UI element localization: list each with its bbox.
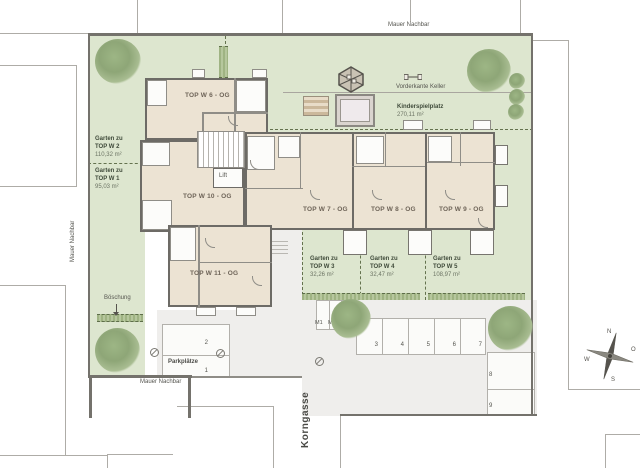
compass-north: N <box>607 329 611 335</box>
roof-vent <box>403 120 423 130</box>
compass-south: S <box>611 377 615 383</box>
unit-separation-wall <box>425 132 427 230</box>
neighbor-outline <box>107 454 108 468</box>
unit-label-w7: TOP W 7 - OG <box>303 206 348 213</box>
basement-edge-label: Vorderkante Keller <box>396 84 445 90</box>
room-divider <box>352 166 425 167</box>
balcony <box>495 185 508 207</box>
unit-label-w9: TOP W 9 - OG <box>439 206 484 213</box>
neighbor-outline <box>177 406 273 407</box>
garden-label-w5: Garten zu TOP W 5 108,97 m² <box>433 256 461 279</box>
garden-w5-unit: TOP W 5 <box>433 264 461 272</box>
neighbor-outline <box>568 40 569 389</box>
neighbor-outline <box>340 413 341 468</box>
utility-marker-icon <box>315 357 324 366</box>
wall-stub <box>188 375 191 418</box>
garden-w3-area: 32,26 m² <box>310 272 338 280</box>
stall-number: 3 <box>368 342 378 348</box>
staircase <box>197 131 245 168</box>
neighbor-building <box>0 65 77 187</box>
stall-number: 8 <box>489 372 499 378</box>
balcony <box>470 230 494 255</box>
moto-stall-label: M1 <box>315 320 323 326</box>
balcony <box>408 230 432 255</box>
boundary-line-south <box>192 376 302 378</box>
garden-w2-unit: TOP W 2 <box>95 144 123 152</box>
garden-w3-unit: TOP W 3 <box>310 264 338 272</box>
slope-label: Böschung <box>104 295 131 303</box>
stall-divider <box>487 389 535 390</box>
boundary-wall-south <box>88 375 192 378</box>
sandbox <box>335 94 375 127</box>
stall-divider <box>434 318 435 355</box>
bush-icon <box>508 104 524 120</box>
garden-label-w1: Garten zu TOP W 1 95,03 m² <box>95 168 123 191</box>
stall-number: 4 <box>394 342 404 348</box>
room <box>278 136 300 158</box>
tree-icon <box>95 39 141 84</box>
stall-divider <box>382 318 383 355</box>
room-divider <box>300 132 301 188</box>
garden-area-west <box>88 35 145 377</box>
wall-stub <box>89 375 92 418</box>
stall-number: 7 <box>472 342 482 348</box>
parking-title: Parkplätze <box>168 359 198 367</box>
room <box>236 80 266 112</box>
room <box>147 80 167 106</box>
room-divider <box>460 132 461 166</box>
roof-vent <box>252 69 267 78</box>
compass-west: W <box>584 357 590 363</box>
stall-number: 1 <box>198 368 208 374</box>
unit-separation-wall <box>352 132 354 230</box>
unit-label-w8: TOP W 8 - OG <box>371 206 416 213</box>
parking-stall-group-3-7 <box>356 318 486 355</box>
neighbor-outline <box>605 434 640 435</box>
seesaw-icon <box>404 72 422 82</box>
neighbor-wall-label-top: Mauer Nachbar <box>388 22 429 28</box>
stall-divider <box>408 318 409 355</box>
room <box>428 136 452 162</box>
neighbor-outline <box>410 0 411 22</box>
garden-w1-prefix: Garten zu <box>95 168 123 176</box>
elevator-label: Lift <box>219 173 227 179</box>
garden-w4-unit: TOP W 4 <box>370 264 398 272</box>
terrace <box>196 307 216 316</box>
neighbor-outline <box>0 455 107 456</box>
playground-label: Kinderspielplatz 270,11 m² <box>397 104 443 119</box>
garden-w1-unit: TOP W 1 <box>95 176 123 184</box>
neighbor-wall-label-bottom: Mauer Nachbar <box>140 379 181 385</box>
basement-edge-line <box>283 92 533 93</box>
garden-boundary-dashed <box>302 232 303 300</box>
neighbor-outline <box>65 285 66 455</box>
boundary-wall-southeast <box>340 414 537 416</box>
balcony <box>495 145 508 165</box>
hedge <box>219 46 228 78</box>
garden-label-w3: Garten zu TOP W 3 32,26 m² <box>310 256 338 279</box>
stall-number: 2 <box>198 340 208 346</box>
compass-icon: N O S W <box>578 322 640 386</box>
room-divider <box>427 162 495 163</box>
tree-icon <box>467 49 511 93</box>
tree-icon <box>95 328 140 373</box>
compass-east: O <box>631 347 636 353</box>
garden-w4-area: 32,47 m² <box>370 272 398 280</box>
neighbor-outline <box>0 33 88 34</box>
neighbor-outline <box>107 454 173 455</box>
neighbor-outline <box>282 0 283 34</box>
neighbor-wall-label-left: Mauer Nachbar <box>70 221 76 262</box>
site-plan: Vorderkante Keller Kinderspielplatz 270,… <box>0 0 640 468</box>
unit-label-w11: TOP W 11 - OG <box>190 270 238 277</box>
garden-label-w2: Garten zu TOP W 2 110,32 m² <box>95 136 123 159</box>
room-divider <box>198 262 272 263</box>
garden-w5-prefix: Garten zu <box>433 256 461 264</box>
garden-w5-area: 108,97 m² <box>433 272 461 280</box>
room <box>170 227 196 261</box>
stall-number: 5 <box>420 342 430 348</box>
playground-area: 270,11 m² <box>397 112 443 120</box>
slope-arrowhead <box>113 312 119 316</box>
room-divider <box>245 188 303 189</box>
hedge-boeschung <box>97 314 143 322</box>
garden-label-w4: Garten zu TOP W 4 32,47 m² <box>370 256 398 279</box>
neighbor-outline <box>137 0 138 33</box>
room <box>356 136 384 164</box>
neighbor-outline <box>605 434 606 468</box>
balcony <box>343 230 367 255</box>
room-divider <box>202 112 268 114</box>
elevator <box>213 168 243 188</box>
bench-icon <box>303 96 329 116</box>
climbing-frame-icon <box>336 65 366 93</box>
stall-number: 6 <box>446 342 456 348</box>
tree-icon <box>331 299 371 339</box>
terrace <box>236 307 256 316</box>
utility-marker-icon <box>216 349 225 358</box>
room <box>142 142 170 166</box>
street-name: Korngasse <box>300 392 311 448</box>
bush-icon <box>509 89 525 105</box>
garden-w2-prefix: Garten zu <box>95 136 123 144</box>
neighbor-outline <box>0 285 65 286</box>
boundary-wall-west <box>88 33 90 377</box>
garden-w4-prefix: Garten zu <box>370 256 398 264</box>
neighbor-outline <box>273 406 274 468</box>
roof-vent <box>473 120 491 130</box>
room-divider <box>385 132 386 166</box>
garden-divider-w1-w2 <box>88 163 143 164</box>
unit-label-w10: TOP W 10 - OG <box>183 193 232 200</box>
slope-arrow <box>116 304 117 312</box>
garden-w3-prefix: Garten zu <box>310 256 338 264</box>
stall-divider <box>460 318 461 355</box>
roof-vent <box>192 69 205 78</box>
unit-label-w6: TOP W 6 - OG <box>185 92 230 99</box>
room-divider <box>198 225 200 307</box>
utility-marker-icon <box>150 348 159 357</box>
neighbor-outline <box>533 40 568 41</box>
boundary-wall-north <box>88 33 533 36</box>
playground-name: Kinderspielplatz <box>397 104 443 112</box>
neighbor-outline <box>568 389 640 390</box>
garden-w1-area: 95,03 m² <box>95 184 123 192</box>
garden-w2-area: 110,32 m² <box>95 152 123 160</box>
stall-number: 9 <box>489 403 499 409</box>
boundary-wall-east <box>531 33 533 416</box>
bush-icon <box>509 73 525 89</box>
sandbox-inner <box>340 99 370 122</box>
tree-icon <box>488 306 533 351</box>
